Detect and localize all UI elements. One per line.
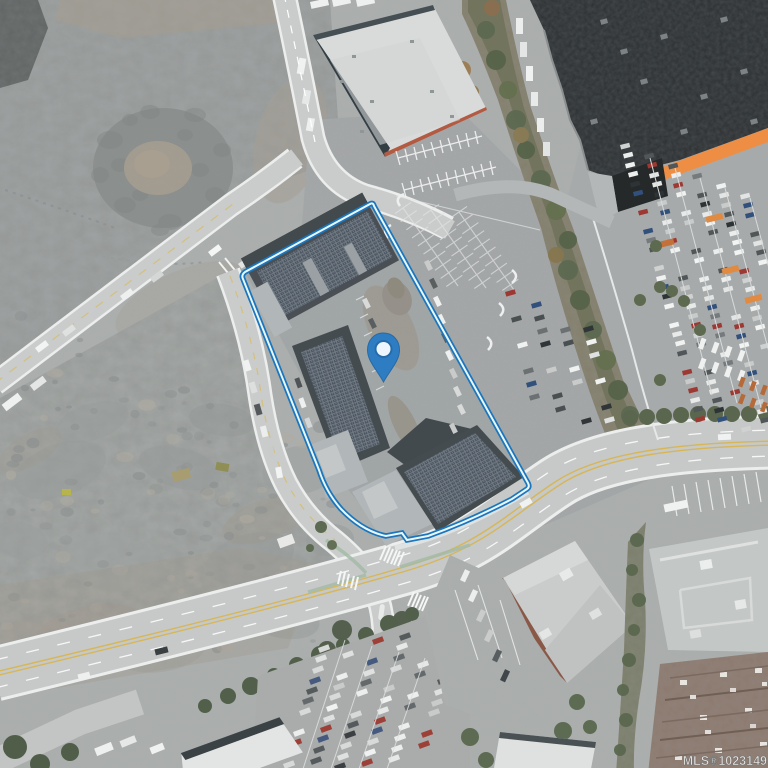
svg-text:MLS®1023149: MLS®1023149 bbox=[683, 754, 767, 768]
